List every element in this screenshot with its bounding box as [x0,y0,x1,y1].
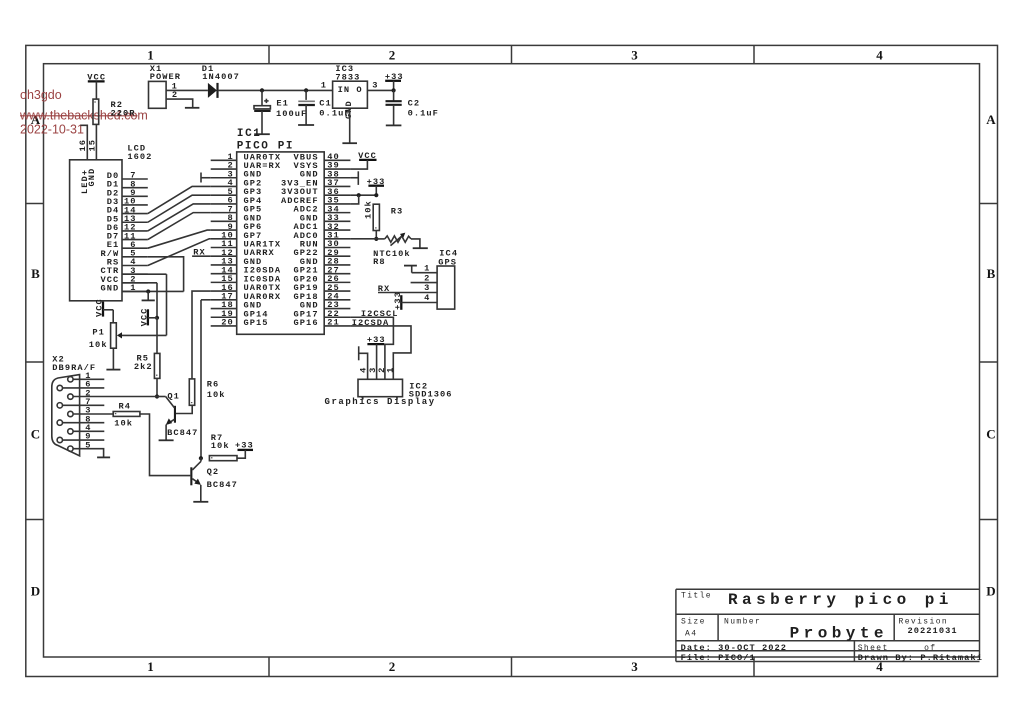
svg-text:E1: E1 [276,99,289,109]
svg-text:D: D [986,583,995,598]
svg-text:GP16: GP16 [294,318,319,328]
svg-text:B: B [987,266,996,281]
svg-text:C2: C2 [408,98,421,108]
svg-text:of: of [924,644,936,653]
svg-text:Sheet: Sheet [858,644,889,653]
svg-text:20221031: 20221031 [908,626,958,636]
svg-text:R4: R4 [119,401,132,411]
svg-text:IN O: IN O [338,85,363,95]
svg-text:4: 4 [876,47,883,62]
svg-text:Title: Title [681,592,712,601]
svg-text:Graphics Display: Graphics Display [325,397,436,407]
svg-text:2: 2 [389,47,396,62]
svg-text:220R: 220R [111,109,136,119]
svg-text:100uF: 100uF [276,109,307,119]
svg-text:1: 1 [147,47,154,62]
svg-text:1: 1 [386,367,396,373]
svg-text:Probyte: Probyte [790,625,888,643]
svg-text:B: B [31,266,40,281]
svg-text:1N4007: 1N4007 [202,72,240,82]
svg-text:0.1uF: 0.1uF [408,108,439,118]
svg-text:IC1: IC1 [237,128,262,140]
svg-text:D: D [31,583,40,598]
svg-text:GND: GND [344,100,354,119]
svg-text:1602: 1602 [127,152,152,162]
svg-text:Number: Number [724,617,761,626]
svg-text:A: A [986,112,996,127]
svg-text:oh3gdo: oh3gdo [20,88,62,102]
svg-text:GND: GND [87,168,97,187]
svg-text:GND: GND [101,283,120,293]
svg-text:R6: R6 [207,379,220,389]
svg-text:Size: Size [681,617,706,626]
svg-text:2: 2 [424,273,430,283]
svg-text:10k: 10k [207,390,226,400]
svg-text:Drawn By: P.Ritamaki: Drawn By: P.Ritamaki [858,653,983,663]
svg-text:BC847: BC847 [207,480,238,490]
svg-text:BC847: BC847 [167,428,198,438]
svg-text:10k: 10k [114,418,133,428]
svg-text:3: 3 [372,80,378,90]
svg-text:3: 3 [631,47,638,62]
svg-text:10k: 10k [89,340,108,350]
svg-text:A4: A4 [685,630,697,639]
svg-text:1: 1 [321,80,327,90]
svg-text:3: 3 [631,659,638,674]
svg-text:15: 15 [88,139,98,152]
svg-text:PICO PI: PICO PI [237,140,294,152]
svg-text:R3: R3 [391,207,404,217]
svg-text:C1: C1 [319,98,332,108]
svg-text:R8: R8 [373,257,386,267]
svg-text:GP15: GP15 [244,318,269,328]
svg-text:2k2: 2k2 [134,362,153,372]
svg-text:Rasberry pico pi: Rasberry pico pi [728,591,953,609]
svg-text:1: 1 [424,263,430,273]
svg-text:P1: P1 [92,327,105,337]
svg-text:C: C [31,426,40,441]
svg-text:File: PICO/1: File: PICO/1 [681,653,756,663]
svg-text:1: 1 [147,659,154,674]
svg-text:2022-10-31: 2022-10-31 [20,122,84,136]
svg-text:C: C [986,426,995,441]
svg-text:2: 2 [389,659,396,674]
svg-text:Revision: Revision [899,617,949,626]
svg-text:10k: 10k [211,441,230,451]
svg-text:10k: 10k [364,200,374,219]
svg-text:Date: 30-OCT 2022: Date: 30-OCT 2022 [681,643,787,653]
svg-text:16: 16 [78,139,88,152]
svg-text:Q2: Q2 [207,467,220,477]
svg-text:Q1: Q1 [167,392,180,402]
